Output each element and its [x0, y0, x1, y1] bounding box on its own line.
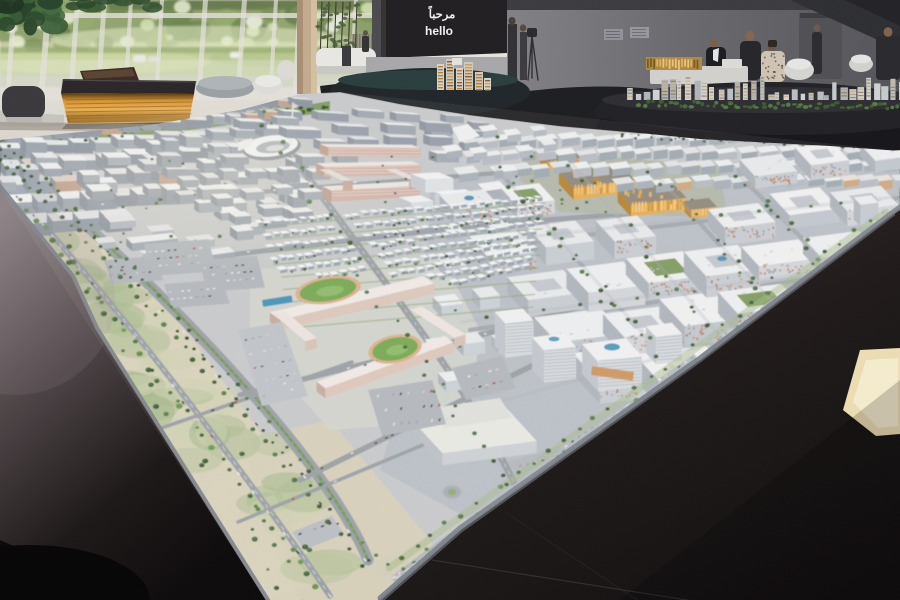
svg-text:hello: hello [425, 24, 453, 38]
